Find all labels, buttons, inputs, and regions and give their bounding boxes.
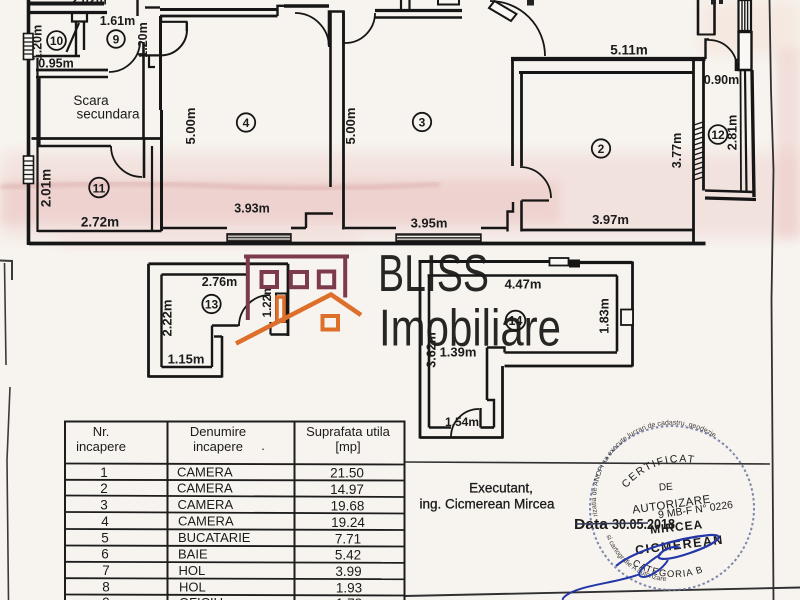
svg-text:6: 6 bbox=[101, 547, 109, 562]
svg-text:11: 11 bbox=[93, 181, 106, 195]
svg-text:.: . bbox=[261, 438, 265, 453]
svg-text:incapere: incapere bbox=[193, 439, 243, 454]
svg-text:CAMERA: CAMERA bbox=[178, 497, 234, 512]
svg-text:2.72m: 2.72m bbox=[81, 215, 119, 230]
svg-text:3.95m: 3.95m bbox=[411, 216, 448, 231]
svg-text:4: 4 bbox=[101, 514, 109, 529]
svg-text:5.42: 5.42 bbox=[335, 548, 361, 563]
svg-text:5.00m: 5.00m bbox=[183, 108, 198, 145]
svg-text:10: 10 bbox=[50, 34, 64, 48]
svg-text:1.20m: 1.20m bbox=[136, 22, 150, 57]
svg-text:Executant,: Executant, bbox=[469, 481, 533, 496]
svg-text:9: 9 bbox=[102, 595, 110, 600]
svg-text:CAMERA: CAMERA bbox=[177, 465, 233, 480]
svg-text:14.97: 14.97 bbox=[330, 482, 364, 497]
svg-text:1.15m: 1.15m bbox=[168, 352, 205, 367]
svg-text:DE: DE bbox=[659, 482, 674, 494]
svg-text:19.68: 19.68 bbox=[331, 499, 365, 514]
svg-text:5.11m: 5.11m bbox=[610, 43, 648, 58]
svg-text:CAMERA: CAMERA bbox=[178, 514, 234, 529]
svg-text:2.81m: 2.81m bbox=[726, 115, 740, 150]
svg-text:2.01m: 2.01m bbox=[39, 169, 54, 207]
svg-text:7: 7 bbox=[102, 563, 110, 578]
svg-text:1.54m: 1.54m bbox=[445, 415, 479, 429]
svg-text:1: 1 bbox=[100, 465, 108, 480]
svg-text:HOL: HOL bbox=[179, 580, 206, 595]
svg-text:ing. Cicmerean Mircea: ing. Cicmerean Mircea bbox=[419, 497, 555, 512]
svg-text:HOL: HOL bbox=[179, 563, 206, 578]
svg-text:1.22m: 1.22m bbox=[262, 285, 274, 318]
svg-text:5: 5 bbox=[101, 531, 109, 546]
svg-text:Nr.: Nr. bbox=[93, 424, 110, 439]
svg-text:1.93: 1.93 bbox=[336, 581, 362, 596]
svg-text:BAIE: BAIE bbox=[178, 547, 208, 562]
svg-text:2.02m: 2.02m bbox=[71, 0, 106, 8]
svg-text:BLISS: BLISS bbox=[378, 245, 489, 303]
svg-text:3.77m: 3.77m bbox=[670, 133, 684, 168]
svg-text:3.97m: 3.97m bbox=[592, 212, 629, 227]
svg-text:0.90m: 0.90m bbox=[704, 73, 739, 87]
svg-text:5.00m: 5.00m bbox=[343, 108, 358, 145]
svg-text:CAMERA: CAMERA bbox=[177, 481, 233, 496]
svg-text:OFICIU: OFICIU bbox=[179, 595, 223, 600]
svg-text:1.20m: 1.20m bbox=[31, 25, 45, 60]
svg-text:Imobiliare: Imobiliare bbox=[379, 300, 561, 358]
svg-text:1.61m: 1.61m bbox=[100, 14, 135, 28]
svg-text:incapere: incapere bbox=[76, 439, 126, 454]
svg-text:3.93m: 3.93m bbox=[234, 202, 269, 216]
svg-text:secundara: secundara bbox=[76, 107, 140, 122]
svg-text:1.78: 1.78 bbox=[336, 596, 362, 600]
svg-text:2: 2 bbox=[598, 142, 605, 156]
svg-text:2.22m: 2.22m bbox=[160, 300, 175, 337]
svg-text:1.83m: 1.83m bbox=[598, 298, 612, 333]
svg-text:4: 4 bbox=[243, 116, 250, 130]
svg-text:7.71: 7.71 bbox=[335, 532, 361, 547]
svg-text:13: 13 bbox=[205, 298, 219, 312]
svg-text:2: 2 bbox=[100, 481, 108, 496]
svg-text:19.24: 19.24 bbox=[331, 515, 365, 530]
svg-text:Suprafata utila: Suprafata utila bbox=[306, 424, 391, 439]
svg-text:Denumire: Denumire bbox=[190, 424, 246, 439]
svg-text:21.50: 21.50 bbox=[330, 466, 364, 481]
svg-text:4.47m: 4.47m bbox=[505, 277, 542, 292]
svg-text:BUCATARIE: BUCATARIE bbox=[178, 530, 251, 545]
svg-text:3: 3 bbox=[100, 498, 108, 513]
svg-text:2.76m: 2.76m bbox=[202, 275, 237, 289]
svg-text:3: 3 bbox=[419, 116, 426, 130]
svg-text:12: 12 bbox=[711, 128, 725, 142]
svg-text:9: 9 bbox=[113, 33, 120, 47]
svg-text:[mp]: [mp] bbox=[335, 439, 360, 454]
svg-text:0.95m: 0.95m bbox=[38, 57, 73, 71]
svg-text:3.99: 3.99 bbox=[335, 564, 361, 579]
svg-text:8: 8 bbox=[102, 580, 110, 595]
